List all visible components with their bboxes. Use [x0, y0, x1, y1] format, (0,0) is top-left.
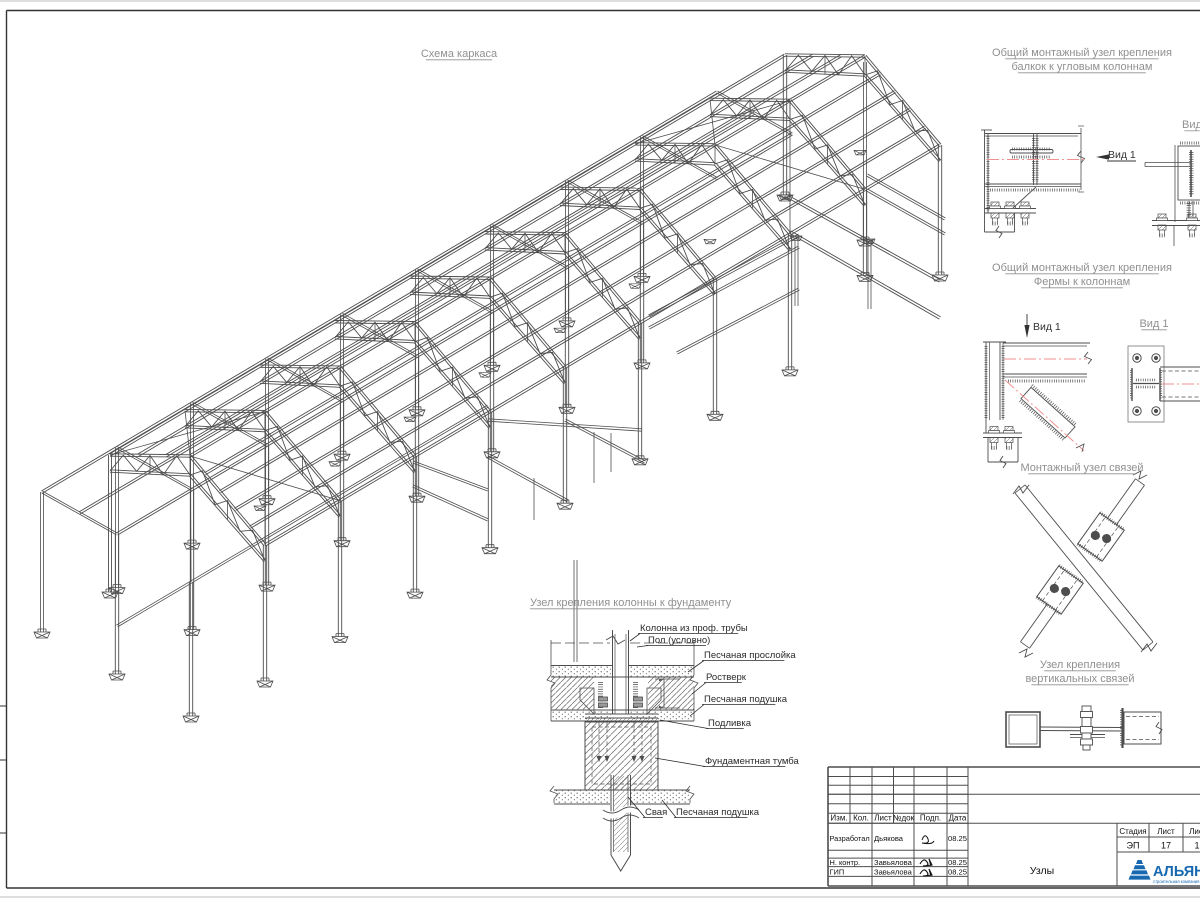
- svg-text:Ростверк: Ростверк: [706, 672, 747, 683]
- svg-text:ГИП: ГИП: [830, 868, 845, 877]
- svg-text:балкок к угловым колоннам: балкок к угловым колоннам: [1012, 61, 1153, 73]
- svg-text:Вид 1: Вид 1: [1033, 321, 1061, 333]
- svg-text:Подп.: Подп.: [920, 814, 941, 823]
- svg-text:Изм.: Изм.: [830, 814, 847, 823]
- svg-text:Колонна из проф. трубы: Колонна из проф. трубы: [640, 623, 748, 634]
- svg-text:Разработал: Разработал: [830, 834, 870, 843]
- svg-text:Фермы к колоннам: Фермы к колоннам: [1034, 276, 1130, 288]
- svg-text:Подливка: Подливка: [708, 718, 752, 729]
- svg-text:Завьялова: Завьялова: [874, 868, 913, 877]
- svg-text:Общий монтажный узел крепления: Общий монтажный узел крепления: [992, 47, 1172, 59]
- svg-text:строительная компания: строительная компания: [1153, 879, 1199, 884]
- svg-text:№док: №док: [893, 814, 915, 823]
- svg-text:вертикальных связей: вертикальных связей: [1025, 673, 1134, 685]
- svg-text:Завьялова: Завьялова: [874, 858, 913, 867]
- svg-text:Общий монтажный узел крепления: Общий монтажный узел крепления: [992, 262, 1172, 274]
- svg-text:Песчаная подушка: Песчаная подушка: [676, 807, 760, 818]
- svg-text:Узел крепления: Узел крепления: [1040, 659, 1120, 671]
- svg-text:Лист: Лист: [1157, 827, 1175, 836]
- svg-text:Дьякова: Дьякова: [874, 834, 904, 843]
- svg-text:Пол (условно): Пол (условно): [648, 635, 710, 646]
- svg-text:08.25: 08.25: [948, 834, 967, 843]
- svg-text:Песчаная подушка: Песчаная подушка: [704, 694, 788, 705]
- svg-text:ЭП: ЭП: [1127, 841, 1140, 851]
- svg-text:08.25: 08.25: [948, 868, 967, 877]
- svg-text:Вид 1: Вид 1: [1139, 318, 1168, 330]
- svg-text:Н. контр.: Н. контр.: [830, 858, 861, 867]
- svg-text:Монтажный узел связей: Монтажный узел связей: [1020, 462, 1143, 474]
- svg-text:Фундаментная тумба: Фундаментная тумба: [705, 756, 800, 767]
- svg-text:Вид: Вид: [1182, 119, 1200, 131]
- svg-text:Узлы: Узлы: [1030, 865, 1054, 877]
- svg-text:Стадия: Стадия: [1119, 827, 1146, 836]
- svg-text:АЛЬЯН: АЛЬЯН: [1153, 864, 1200, 880]
- svg-text:Вид 1: Вид 1: [1108, 149, 1136, 161]
- svg-text:Свая: Свая: [645, 807, 667, 818]
- svg-text:Кол.: Кол.: [853, 814, 869, 823]
- svg-text:Схема каркаса: Схема каркаса: [421, 48, 498, 60]
- svg-text:08.25: 08.25: [948, 858, 967, 867]
- svg-text:Песчаная прослойка: Песчаная прослойка: [704, 650, 796, 661]
- svg-text:Лис: Лис: [1189, 827, 1200, 836]
- svg-text:17: 17: [1161, 841, 1171, 851]
- svg-text:Узел крепления колонны к фунда: Узел крепления колонны к фундаменту: [530, 597, 732, 609]
- svg-text:Дата: Дата: [949, 814, 967, 823]
- svg-text:1: 1: [1194, 841, 1199, 851]
- svg-text:Лист: Лист: [874, 814, 892, 823]
